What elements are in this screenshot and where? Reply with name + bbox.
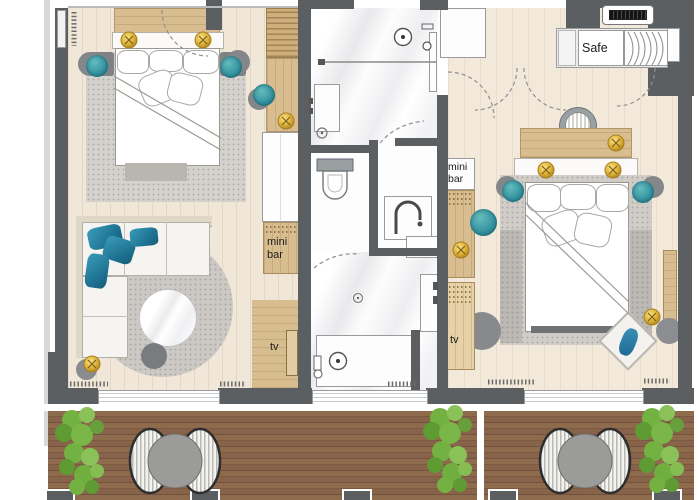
- pouf: [76, 359, 97, 380]
- wall: [369, 140, 378, 255]
- sofa-seam: [166, 222, 167, 276]
- teal-pillow: [129, 227, 158, 247]
- pillow: [117, 50, 149, 74]
- minibar-left-line2: bar: [267, 249, 287, 262]
- minibar-label-left: mini bar: [267, 236, 287, 261]
- right-bed-desk: [520, 128, 632, 158]
- bathroom-door-leaf: [429, 32, 437, 92]
- minibar-right-line1: mini: [448, 161, 467, 173]
- wall-edge-line: [68, 6, 298, 8]
- planter-box-inner: [47, 491, 73, 500]
- sofa-seam: [82, 316, 128, 317]
- teal-stool: [502, 180, 524, 202]
- wall: [566, 0, 600, 30]
- bath2-vanity: [420, 274, 438, 332]
- deck-threshold: [40, 404, 694, 411]
- teal-stool: [86, 55, 108, 77]
- pouf: [141, 343, 167, 369]
- pillow: [596, 184, 629, 212]
- sofa-chaise: [82, 276, 128, 358]
- teal-round-rug: [470, 209, 497, 236]
- closet-seam: [280, 134, 281, 220]
- floor-plan: mini bar tv mini bar tv: [0, 0, 700, 500]
- wall: [678, 96, 692, 388]
- shower-tray: [316, 335, 414, 387]
- ac-grille: [609, 10, 647, 20]
- minibar-left-line1: mini: [267, 236, 287, 249]
- pillow: [183, 50, 219, 74]
- duct: [440, 8, 486, 58]
- tv-console-left: [286, 330, 298, 376]
- rug-texture: [500, 230, 522, 343]
- bath1-vanity: [314, 84, 340, 132]
- tv-label-right: tv: [450, 334, 459, 347]
- wall: [411, 330, 420, 390]
- planter-box-inner: [654, 491, 680, 500]
- teal-stool: [220, 56, 242, 78]
- wall: [55, 8, 68, 360]
- tv-label-left: tv: [270, 341, 279, 354]
- bed-throw: [125, 163, 187, 181]
- pillow: [560, 184, 596, 210]
- planter-box-inner: [490, 491, 516, 500]
- utility-basin: [384, 196, 432, 240]
- minibar-right-line2: bar: [448, 173, 467, 185]
- pillow: [527, 184, 561, 212]
- left-bed-headboard: [114, 8, 220, 34]
- wall: [395, 138, 438, 146]
- wall: [298, 0, 311, 390]
- wall: [311, 145, 369, 153]
- wall: [298, 0, 354, 9]
- teal-stool: [253, 84, 275, 106]
- wall-window: [57, 10, 66, 48]
- wall: [369, 248, 438, 256]
- safe-label: Safe: [582, 41, 608, 55]
- deck-divider: [477, 411, 484, 500]
- planter-box-inner: [192, 491, 218, 500]
- wall: [206, 0, 222, 30]
- minibar-cabinet-right: [446, 190, 475, 278]
- wall: [437, 95, 448, 388]
- side-console: [663, 250, 677, 328]
- planter-box-inner: [344, 491, 370, 500]
- coffee-table: [139, 289, 197, 347]
- hanging-closet: [624, 30, 668, 66]
- deck: [48, 411, 694, 500]
- wardrobe-shelves: [266, 8, 300, 58]
- tv-console-right: [446, 282, 475, 370]
- teal-stool: [632, 181, 654, 203]
- minibar-label-right: mini bar: [448, 161, 467, 185]
- closet-cell: [558, 30, 576, 66]
- left-bed-shelf: [112, 32, 224, 49]
- wall: [420, 0, 448, 10]
- wc-floor: [310, 148, 370, 255]
